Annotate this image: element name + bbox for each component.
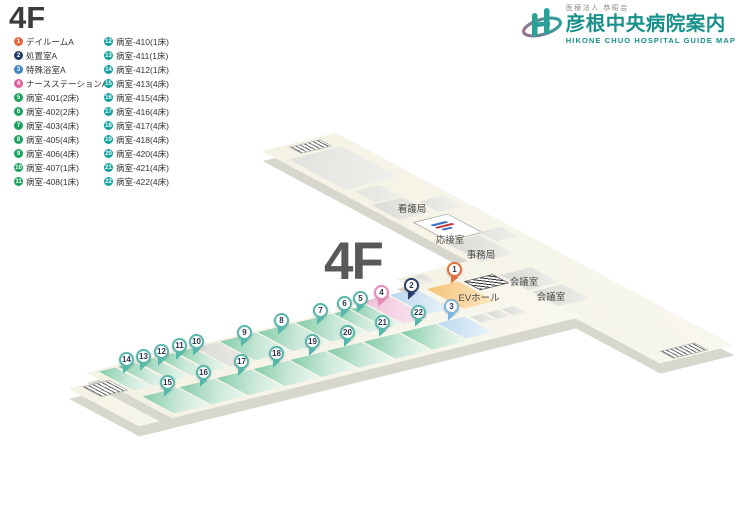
map-pin-1[interactable]: 1 bbox=[447, 262, 462, 277]
hospital-name-english: HIKONE CHUO HOSPITAL GUIDE MAP bbox=[566, 36, 736, 45]
legend-number-badge: 6 bbox=[14, 107, 23, 116]
legend-item-17: 17病室-416(4床) bbox=[104, 107, 184, 117]
map-label-1: 看護局 bbox=[398, 201, 427, 215]
map-pin-13[interactable]: 13 bbox=[136, 349, 151, 364]
legend-item-18: 18病室-417(4床) bbox=[104, 121, 184, 131]
map-label-3: 事務局 bbox=[467, 247, 496, 261]
legend-item-12: 12病室-410(1床) bbox=[104, 37, 184, 47]
legend-number-badge: 22 bbox=[104, 177, 113, 186]
legend-item-11: 11病室-408(1床) bbox=[14, 177, 94, 187]
legend-number-badge: 1 bbox=[14, 37, 23, 46]
map-pin-15[interactable]: 15 bbox=[160, 375, 175, 390]
legend-item-5: 5病室-401(2床) bbox=[14, 93, 94, 103]
legend-number-badge: 13 bbox=[104, 51, 113, 60]
legend-number-badge: 20 bbox=[104, 149, 113, 158]
pin-number: 10 bbox=[192, 338, 201, 346]
map-label-4: 会議室 bbox=[510, 274, 539, 288]
pin-number: 18 bbox=[272, 350, 281, 358]
legend-number-badge: 5 bbox=[14, 93, 23, 102]
legend-number-badge: 17 bbox=[104, 107, 113, 116]
legend-label: 病室-417(4床) bbox=[116, 122, 169, 131]
map-label-5: 会議室 bbox=[537, 289, 566, 303]
legend: 1デイルームA2処置室A3特殊浴室A4ナースステーションA5病室-401(2床)… bbox=[14, 37, 184, 187]
corporate-name: 医療法人 恭昭会 bbox=[566, 3, 736, 13]
pin-number: 19 bbox=[308, 338, 317, 346]
legend-label: 病室-418(4床) bbox=[116, 136, 169, 145]
legend-label: 病室-410(1床) bbox=[116, 38, 169, 47]
map-pin-11[interactable]: 11 bbox=[172, 338, 187, 353]
hospital-logo-icon bbox=[521, 3, 563, 47]
map-pin-22[interactable]: 22 bbox=[411, 305, 426, 320]
pin-number: 11 bbox=[175, 342, 183, 350]
legend-label: 病室-408(1床) bbox=[26, 178, 79, 187]
legend-item-19: 19病室-418(4床) bbox=[104, 135, 184, 145]
legend-number-badge: 7 bbox=[14, 121, 23, 130]
legend-label: ナースステーションA bbox=[26, 80, 108, 89]
legend-label: 病室-421(4床) bbox=[116, 164, 169, 173]
pin-number: 6 bbox=[342, 300, 346, 308]
pin-number: 1 bbox=[452, 266, 456, 274]
legend-item-9: 9病室-406(4床) bbox=[14, 149, 94, 159]
legend-label: 処置室A bbox=[26, 52, 57, 61]
pin-number: 12 bbox=[157, 348, 166, 356]
legend-label: 病室-413(4床) bbox=[116, 80, 169, 89]
map-pin-19[interactable]: 19 bbox=[305, 334, 320, 349]
pin-number: 8 bbox=[279, 317, 283, 325]
map-pin-12[interactable]: 12 bbox=[154, 344, 169, 359]
legend-label: 病室-405(4床) bbox=[26, 136, 79, 145]
map-pin-9[interactable]: 9 bbox=[237, 325, 252, 340]
legend-number-badge: 2 bbox=[14, 51, 23, 60]
legend-item-6: 6病室-402(2床) bbox=[14, 107, 94, 117]
legend-label: 病室-415(4床) bbox=[116, 94, 169, 103]
pin-number: 13 bbox=[139, 353, 148, 361]
legend-label: 病室-402(2床) bbox=[26, 108, 79, 117]
map-pin-4[interactable]: 4 bbox=[374, 285, 389, 300]
map-pin-5[interactable]: 5 bbox=[353, 291, 368, 306]
floor-guide-screen: 4F 1デイルームA2処置室A3特殊浴室A4ナースステーションA5病室-401(… bbox=[0, 0, 740, 522]
legend-number-badge: 12 bbox=[104, 37, 113, 46]
legend-label: 病室-422(4床) bbox=[116, 178, 169, 187]
legend-number-badge: 19 bbox=[104, 135, 113, 144]
legend-number-badge: 4 bbox=[14, 79, 23, 88]
legend-label: 病室-407(1床) bbox=[26, 164, 79, 173]
map-pin-6[interactable]: 6 bbox=[337, 296, 352, 311]
pin-number: 17 bbox=[237, 358, 246, 366]
legend-label: デイルームA bbox=[26, 38, 74, 47]
legend-number-badge: 16 bbox=[104, 93, 113, 102]
pin-number: 15 bbox=[163, 379, 172, 387]
map-pin-2[interactable]: 2 bbox=[404, 278, 419, 293]
legend-label: 病室-406(4床) bbox=[26, 150, 79, 159]
map-pin-8[interactable]: 8 bbox=[274, 313, 289, 328]
pin-number: 20 bbox=[343, 329, 352, 337]
pin-number: 22 bbox=[414, 309, 423, 317]
pin-number: 7 bbox=[318, 307, 322, 315]
legend-item-20: 20病室-420(4床) bbox=[104, 149, 184, 159]
legend-item-21: 21病室-421(4床) bbox=[104, 163, 184, 173]
legend-number-badge: 3 bbox=[14, 65, 23, 74]
legend-item-22: 22病室-422(4床) bbox=[104, 177, 184, 187]
legend-item-2: 2処置室A bbox=[14, 51, 94, 61]
map-pin-20[interactable]: 20 bbox=[340, 325, 355, 340]
hospital-logo: 医療法人 恭昭会 彦根中央病院案内 HIKONE CHUO HOSPITAL G… bbox=[521, 3, 736, 47]
pin-number: 5 bbox=[358, 295, 362, 303]
legend-item-15: 15病室-413(4床) bbox=[104, 79, 184, 89]
pin-number: 21 bbox=[378, 319, 387, 327]
map-pin-18[interactable]: 18 bbox=[269, 346, 284, 361]
legend-number-badge: 8 bbox=[14, 135, 23, 144]
legend-item-16: 16病室-415(4床) bbox=[104, 93, 184, 103]
legend-item-13: 13病室-411(1床) bbox=[104, 51, 184, 61]
pin-number: 4 bbox=[379, 289, 383, 297]
legend-number-badge: 14 bbox=[104, 65, 113, 74]
pin-number: 14 bbox=[122, 356, 131, 364]
map-pin-16[interactable]: 16 bbox=[196, 365, 211, 380]
map-pin-17[interactable]: 17 bbox=[234, 354, 249, 369]
legend-number-badge: 21 bbox=[104, 163, 113, 172]
map-pin-14[interactable]: 14 bbox=[119, 352, 134, 367]
map-pin-3[interactable]: 3 bbox=[444, 299, 459, 314]
hospital-name: 彦根中央病院案内 bbox=[566, 14, 736, 34]
legend-label: 病室-416(4床) bbox=[116, 108, 169, 117]
legend-item-10: 10病室-407(1床) bbox=[14, 163, 94, 173]
legend-number-badge: 9 bbox=[14, 149, 23, 158]
legend-item-14: 14病室-412(1床) bbox=[104, 65, 184, 75]
pin-number: 2 bbox=[409, 282, 413, 290]
legend-column-1: 1デイルームA2処置室A3特殊浴室A4ナースステーションA5病室-401(2床)… bbox=[14, 37, 94, 187]
legend-item-1: 1デイルームA bbox=[14, 37, 94, 47]
legend-label: 病室-411(1床) bbox=[116, 52, 168, 61]
legend-item-8: 8病室-405(4床) bbox=[14, 135, 94, 145]
map-label-6: EVホール bbox=[458, 290, 499, 304]
legend-number-badge: 11 bbox=[14, 177, 23, 186]
pin-number: 3 bbox=[449, 303, 453, 311]
legend-number-badge: 15 bbox=[104, 79, 113, 88]
legend-number-badge: 18 bbox=[104, 121, 113, 130]
legend-label: 特殊浴室A bbox=[26, 66, 66, 75]
map-pin-10[interactable]: 10 bbox=[189, 334, 204, 349]
legend-label: 病室-412(1床) bbox=[116, 66, 169, 75]
legend-item-3: 3特殊浴室A bbox=[14, 65, 94, 75]
map-pin-7[interactable]: 7 bbox=[313, 303, 328, 318]
pin-number: 9 bbox=[242, 329, 246, 337]
legend-item-4: 4ナースステーションA bbox=[14, 79, 94, 89]
map-pin-21[interactable]: 21 bbox=[375, 315, 390, 330]
legend-label: 病室-401(2床) bbox=[26, 94, 79, 103]
legend-item-7: 7病室-403(4床) bbox=[14, 121, 94, 131]
legend-label: 病室-420(4床) bbox=[116, 150, 169, 159]
legend-column-2: 12病室-410(1床)13病室-411(1床)14病室-412(1床)15病室… bbox=[104, 37, 184, 187]
pin-number: 16 bbox=[199, 369, 208, 377]
legend-number-badge: 10 bbox=[14, 163, 23, 172]
map-label-2: 応接室 bbox=[436, 232, 465, 246]
legend-label: 病室-403(4床) bbox=[26, 122, 79, 131]
